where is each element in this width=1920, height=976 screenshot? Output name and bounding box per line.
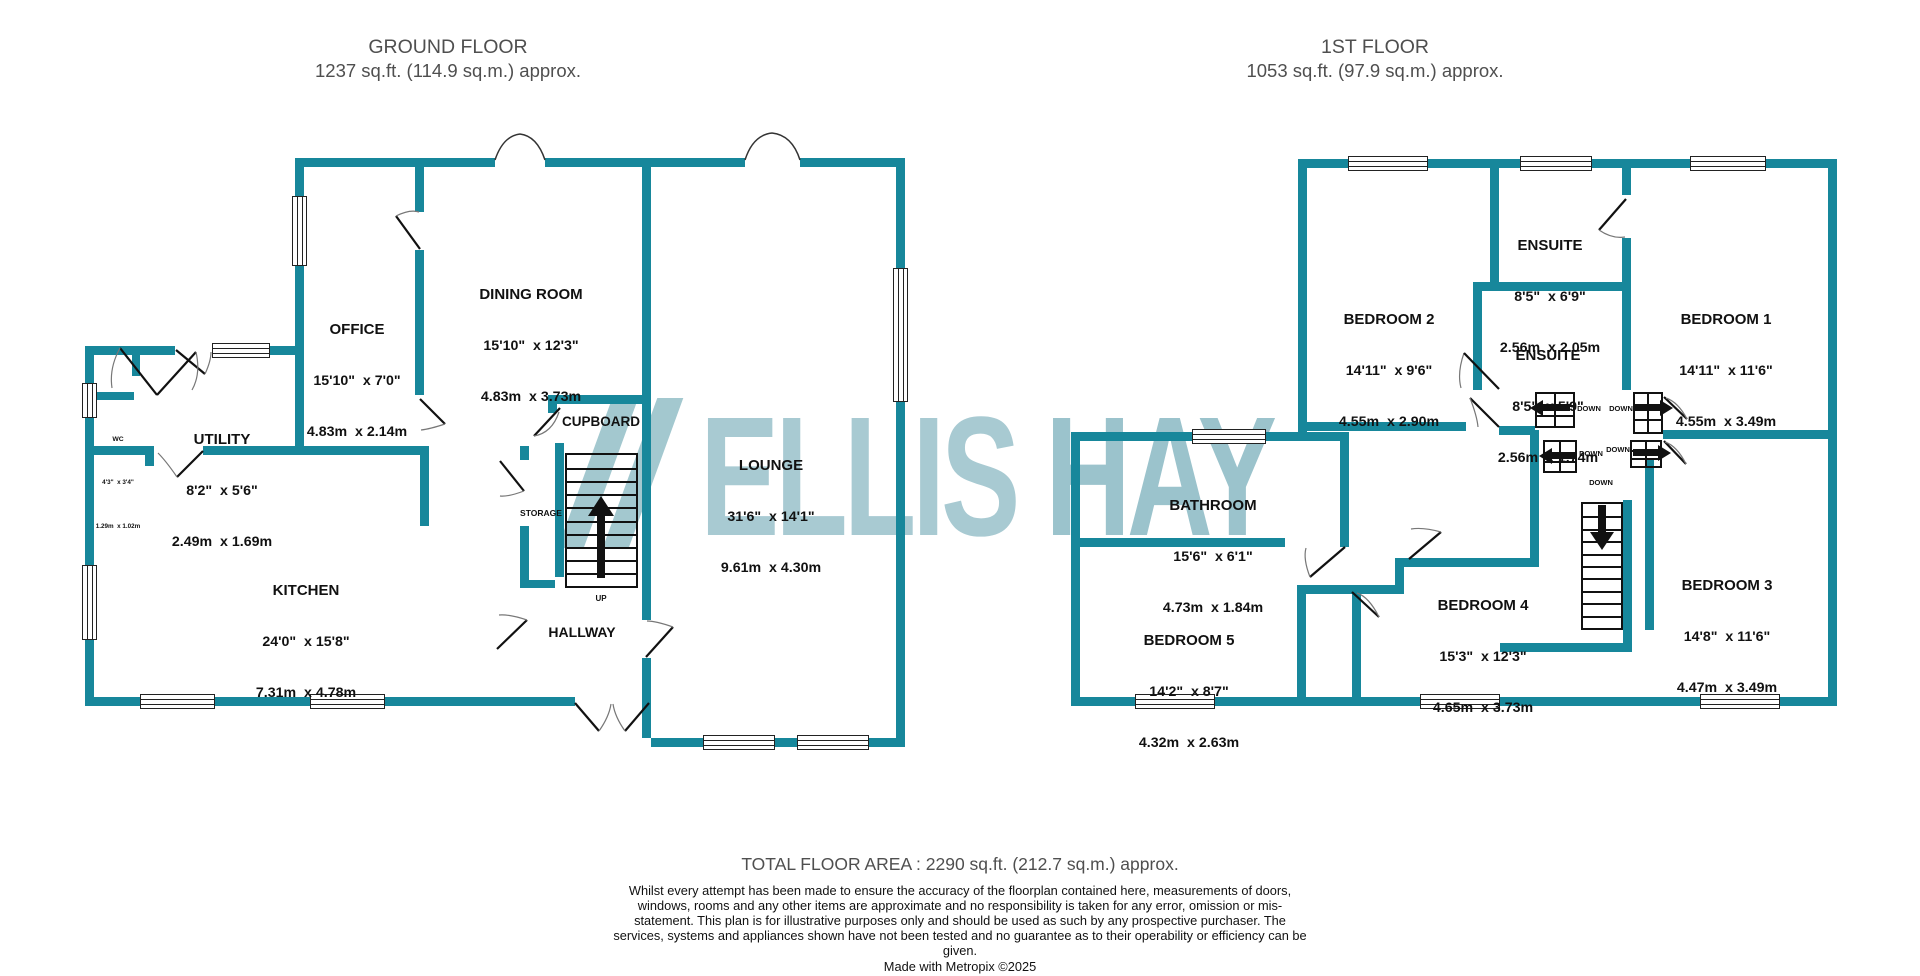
label-down: DOWN — [1579, 449, 1603, 458]
room-label-bedroom-2: BEDROOM 2 14'11" x 9'6" 4.55m x 2.90m — [1339, 276, 1439, 467]
room-label-bedroom-5: BEDROOM 5 14'2" x 8'7" 4.32m x 2.63m — [1139, 597, 1239, 788]
window-pane-line — [1691, 166, 1765, 167]
window — [292, 196, 307, 266]
ground-floor-title: GROUND FLOOR — [315, 36, 581, 59]
window — [797, 735, 869, 750]
flight-arrow-icon — [1633, 449, 1659, 456]
window — [212, 343, 270, 358]
window-pane-line — [92, 384, 93, 417]
window-pane-line — [92, 566, 93, 639]
floorplan-canvas: ELLIS HAY GROUND FLOOR 1237 sq.ft. (114.… — [0, 0, 1920, 976]
label-cupboard: CUPBOARD — [562, 414, 640, 429]
window-pane-line — [213, 353, 269, 354]
room-label-wc: WC 4'3" x 3'4" 1.29m x 1.02m — [96, 400, 140, 566]
room-label-dining-room: DINING ROOM 15'10" x 12'3" 4.83m x 3.73m — [479, 251, 582, 442]
flight-arrow-icon — [1660, 400, 1673, 416]
window-pane-line — [1521, 166, 1591, 167]
room-label-bedroom-1: BEDROOM 1 14'11" x 11'6" 4.55m x 3.49m — [1676, 276, 1776, 467]
room-label-kitchen: KITCHEN 24'0" x 15'8" 7.31m x 4.78m — [256, 547, 356, 738]
window — [893, 268, 908, 402]
window-pane-line — [1349, 166, 1427, 167]
room-label-bedroom-4: BEDROOM 4 15'3" x 12'3" 4.65m x 3.73m — [1433, 562, 1533, 753]
window — [1690, 156, 1766, 171]
window — [703, 735, 775, 750]
label-storage: STORAGE — [520, 508, 562, 518]
down-arrow-icon — [1598, 505, 1606, 533]
label-down: DOWN — [1606, 445, 1630, 454]
disclaimer-text: Whilst every attempt has been made to en… — [610, 884, 1310, 959]
first-floor-header: 1ST FLOOR 1053 sq.ft. (97.9 sq.m.) appro… — [1246, 36, 1503, 82]
total-floor-area: TOTAL FLOOR AREA : 2290 sq.ft. (212.7 sq… — [0, 854, 1920, 875]
window — [1348, 156, 1428, 171]
flight-arrow-icon — [1635, 404, 1661, 411]
first-floor-area: 1053 sq.ft. (97.9 sq.m.) approx. — [1246, 59, 1503, 82]
ground-floor-area: 1237 sq.ft. (114.9 sq.m.) approx. — [315, 59, 581, 82]
label-up: UP — [595, 594, 606, 603]
window-pane-line — [798, 745, 868, 746]
window — [82, 383, 97, 418]
window-pane-line — [903, 269, 904, 401]
room-label-office: OFFICE 15'10" x 7'0" 4.83m x 2.14m — [307, 286, 407, 477]
up-arrow-icon — [588, 496, 614, 516]
window-pane-line — [1521, 161, 1591, 162]
window-pane-line — [87, 566, 88, 639]
window — [140, 694, 215, 709]
window — [1520, 156, 1592, 171]
window-pane-line — [87, 384, 88, 417]
window-pane-line — [704, 740, 774, 741]
label-down: DOWN — [1609, 404, 1633, 413]
window-pane-line — [898, 269, 899, 401]
window-pane-line — [1349, 161, 1427, 162]
window-pane-line — [1193, 439, 1265, 440]
label-down: DOWN — [1589, 478, 1613, 487]
window-pane-line — [213, 348, 269, 349]
first-floor-title: 1ST FLOOR — [1246, 36, 1503, 59]
flight-arrow-icon — [1658, 445, 1671, 461]
window-pane-line — [704, 745, 774, 746]
room-label-lounge: LOUNGE 31'6" x 14'1" 9.61m x 4.30m — [721, 422, 821, 613]
window-pane-line — [302, 197, 303, 265]
metropix-credit: Made with Metropix ©2025 — [0, 959, 1920, 974]
label-down: DOWN — [1577, 404, 1601, 413]
door-swing-overlay — [0, 0, 1920, 976]
ground-floor-header: GROUND FLOOR 1237 sq.ft. (114.9 sq.m.) a… — [315, 36, 581, 82]
window — [82, 565, 97, 640]
window-pane-line — [297, 197, 298, 265]
window-pane-line — [798, 740, 868, 741]
window-pane-line — [141, 704, 214, 705]
window — [1192, 429, 1266, 444]
down-arrow-icon — [1590, 532, 1614, 550]
room-label-bedroom-3: BEDROOM 3 14'8" x 11'6" 4.47m x 3.49m — [1677, 542, 1777, 733]
label-hallway: HALLWAY — [548, 624, 615, 640]
footer: TOTAL FLOOR AREA : 2290 sq.ft. (212.7 sq… — [0, 854, 1920, 974]
up-arrow-icon — [597, 514, 605, 578]
window-pane-line — [1691, 161, 1765, 162]
window-pane-line — [1193, 434, 1265, 435]
window-pane-line — [141, 699, 214, 700]
